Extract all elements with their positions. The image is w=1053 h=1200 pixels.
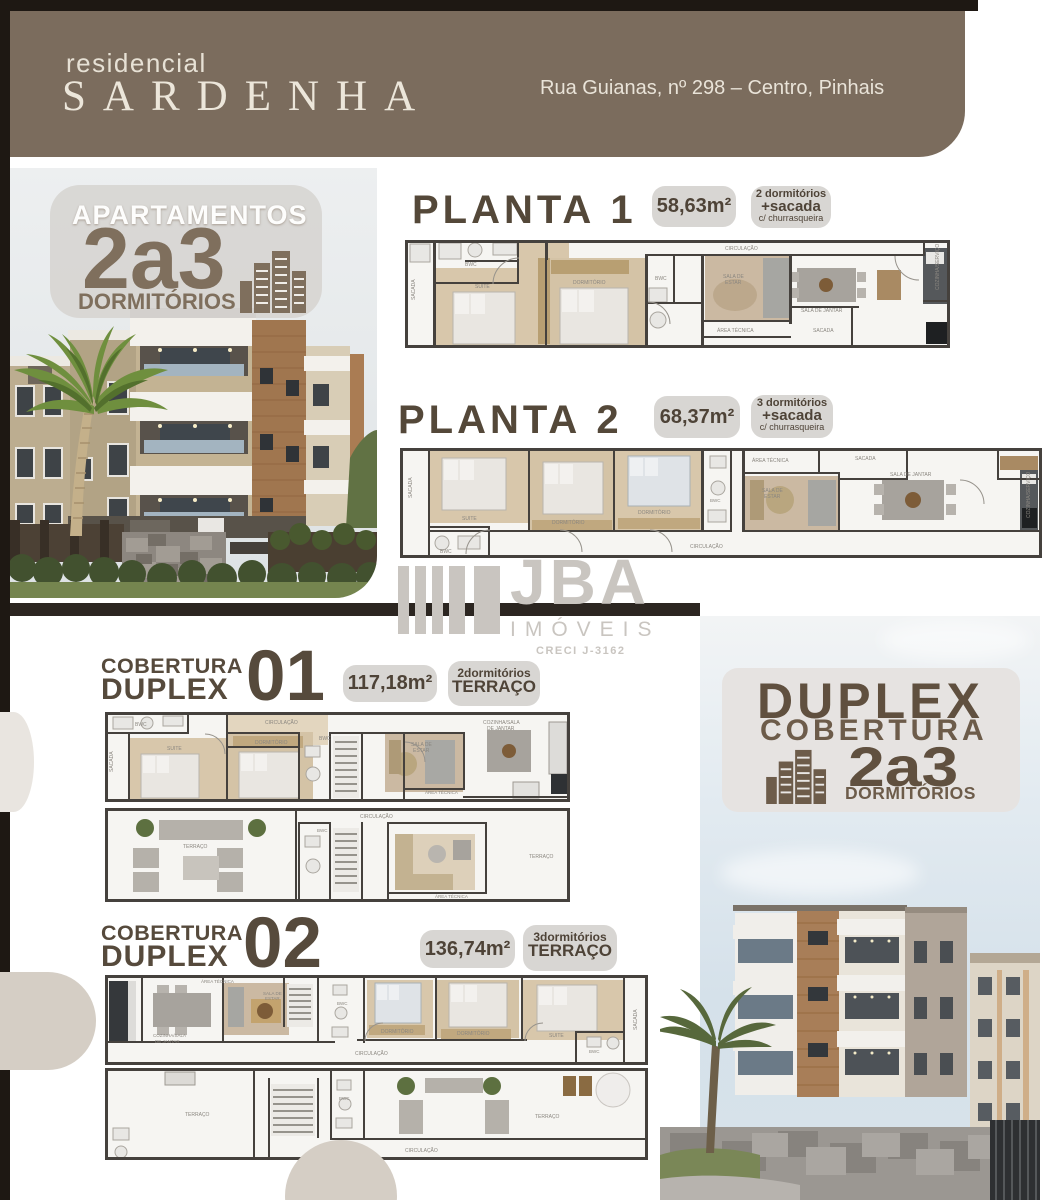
svg-text:BWC: BWC bbox=[440, 549, 452, 555]
svg-text:SACADA: SACADA bbox=[813, 328, 834, 334]
svg-text:BWC: BWC bbox=[337, 1001, 348, 1006]
svg-text:CIRCULAÇÃO: CIRCULAÇÃO bbox=[355, 1050, 388, 1057]
svg-text:CIRCULAÇÃO: CIRCULAÇÃO bbox=[405, 1147, 438, 1154]
svg-text:CIRCULAÇÃO: CIRCULAÇÃO bbox=[690, 543, 723, 550]
svg-text:SALA DE JANTAR: SALA DE JANTAR bbox=[890, 472, 932, 478]
svg-text:COZINHA/SERVIÇO: COZINHA/SERVIÇO bbox=[1026, 472, 1032, 518]
svg-text:SACADA: SACADA bbox=[109, 751, 115, 772]
svg-text:TERRAÇO: TERRAÇO bbox=[529, 854, 554, 860]
svg-text:CIRCULAÇÃO: CIRCULAÇÃO bbox=[265, 719, 298, 726]
svg-text:TERRAÇO: TERRAÇO bbox=[535, 1114, 560, 1120]
svg-text:SALA DEESTAR: SALA DEESTAR bbox=[263, 991, 282, 1001]
svg-text:DORMITÓRIO: DORMITÓRIO bbox=[381, 1028, 414, 1035]
svg-text:DORMITÓRIO: DORMITÓRIO bbox=[457, 1030, 490, 1037]
svg-text:ÁREA TÉCNICA: ÁREA TÉCNICA bbox=[425, 789, 458, 795]
svg-text:CIRCULAÇÃO: CIRCULAÇÃO bbox=[725, 245, 758, 252]
svg-text:ÁREA TÉCNICA: ÁREA TÉCNICA bbox=[201, 978, 234, 984]
svg-text:BWC: BWC bbox=[589, 1049, 600, 1054]
svg-text:SALA DEESTAR: SALA DEESTAR bbox=[762, 488, 784, 500]
svg-text:SALA DEESTAR: SALA DEESTAR bbox=[411, 742, 433, 754]
svg-text:BWC: BWC bbox=[465, 262, 477, 268]
svg-text:TERRAÇO: TERRAÇO bbox=[183, 844, 208, 850]
svg-text:SUITE: SUITE bbox=[167, 746, 182, 752]
svg-text:SACADA: SACADA bbox=[408, 477, 414, 498]
svg-text:SUITE: SUITE bbox=[462, 516, 477, 522]
svg-text:SACADA: SACADA bbox=[633, 1009, 639, 1030]
svg-text:BWC: BWC bbox=[135, 722, 147, 728]
svg-text:ÁREA TÉCNICA: ÁREA TÉCNICA bbox=[752, 457, 789, 464]
svg-text:SALA DE JANTAR: SALA DE JANTAR bbox=[801, 308, 843, 314]
svg-text:JBA: JBA bbox=[510, 556, 650, 618]
svg-text:BWC: BWC bbox=[339, 1096, 350, 1101]
svg-text:BWC: BWC bbox=[319, 736, 331, 742]
svg-text:CIRCULAÇÃO: CIRCULAÇÃO bbox=[360, 813, 393, 820]
svg-text:SACADA: SACADA bbox=[411, 279, 417, 300]
svg-text:SALA DEESTAR: SALA DEESTAR bbox=[723, 274, 745, 286]
svg-text:SUITE: SUITE bbox=[549, 1033, 564, 1039]
svg-text:BWC: BWC bbox=[710, 498, 721, 503]
svg-text:ÁREA TÉCNICA: ÁREA TÉCNICA bbox=[435, 893, 468, 899]
svg-text:BWC: BWC bbox=[655, 276, 667, 282]
svg-text:DORMITÓRIO: DORMITÓRIO bbox=[552, 519, 585, 526]
svg-text:CRECI J-3162: CRECI J-3162 bbox=[536, 645, 626, 657]
svg-text:BWC: BWC bbox=[317, 828, 328, 833]
svg-text:IMÓVEIS: IMÓVEIS bbox=[510, 618, 661, 641]
svg-text:DORMITÓRIO: DORMITÓRIO bbox=[638, 509, 671, 516]
svg-text:DORMITÓRIO: DORMITÓRIO bbox=[255, 739, 288, 746]
svg-text:SACADA: SACADA bbox=[855, 456, 876, 462]
svg-text:SUITE: SUITE bbox=[475, 284, 490, 290]
svg-text:TERRAÇO: TERRAÇO bbox=[185, 1112, 210, 1118]
svg-text:COZINHA/SERVIÇO: COZINHA/SERVIÇO bbox=[935, 244, 941, 290]
svg-text:ÁREA TÉCNICA: ÁREA TÉCNICA bbox=[717, 327, 754, 334]
svg-text:DORMITÓRIO: DORMITÓRIO bbox=[573, 279, 606, 286]
